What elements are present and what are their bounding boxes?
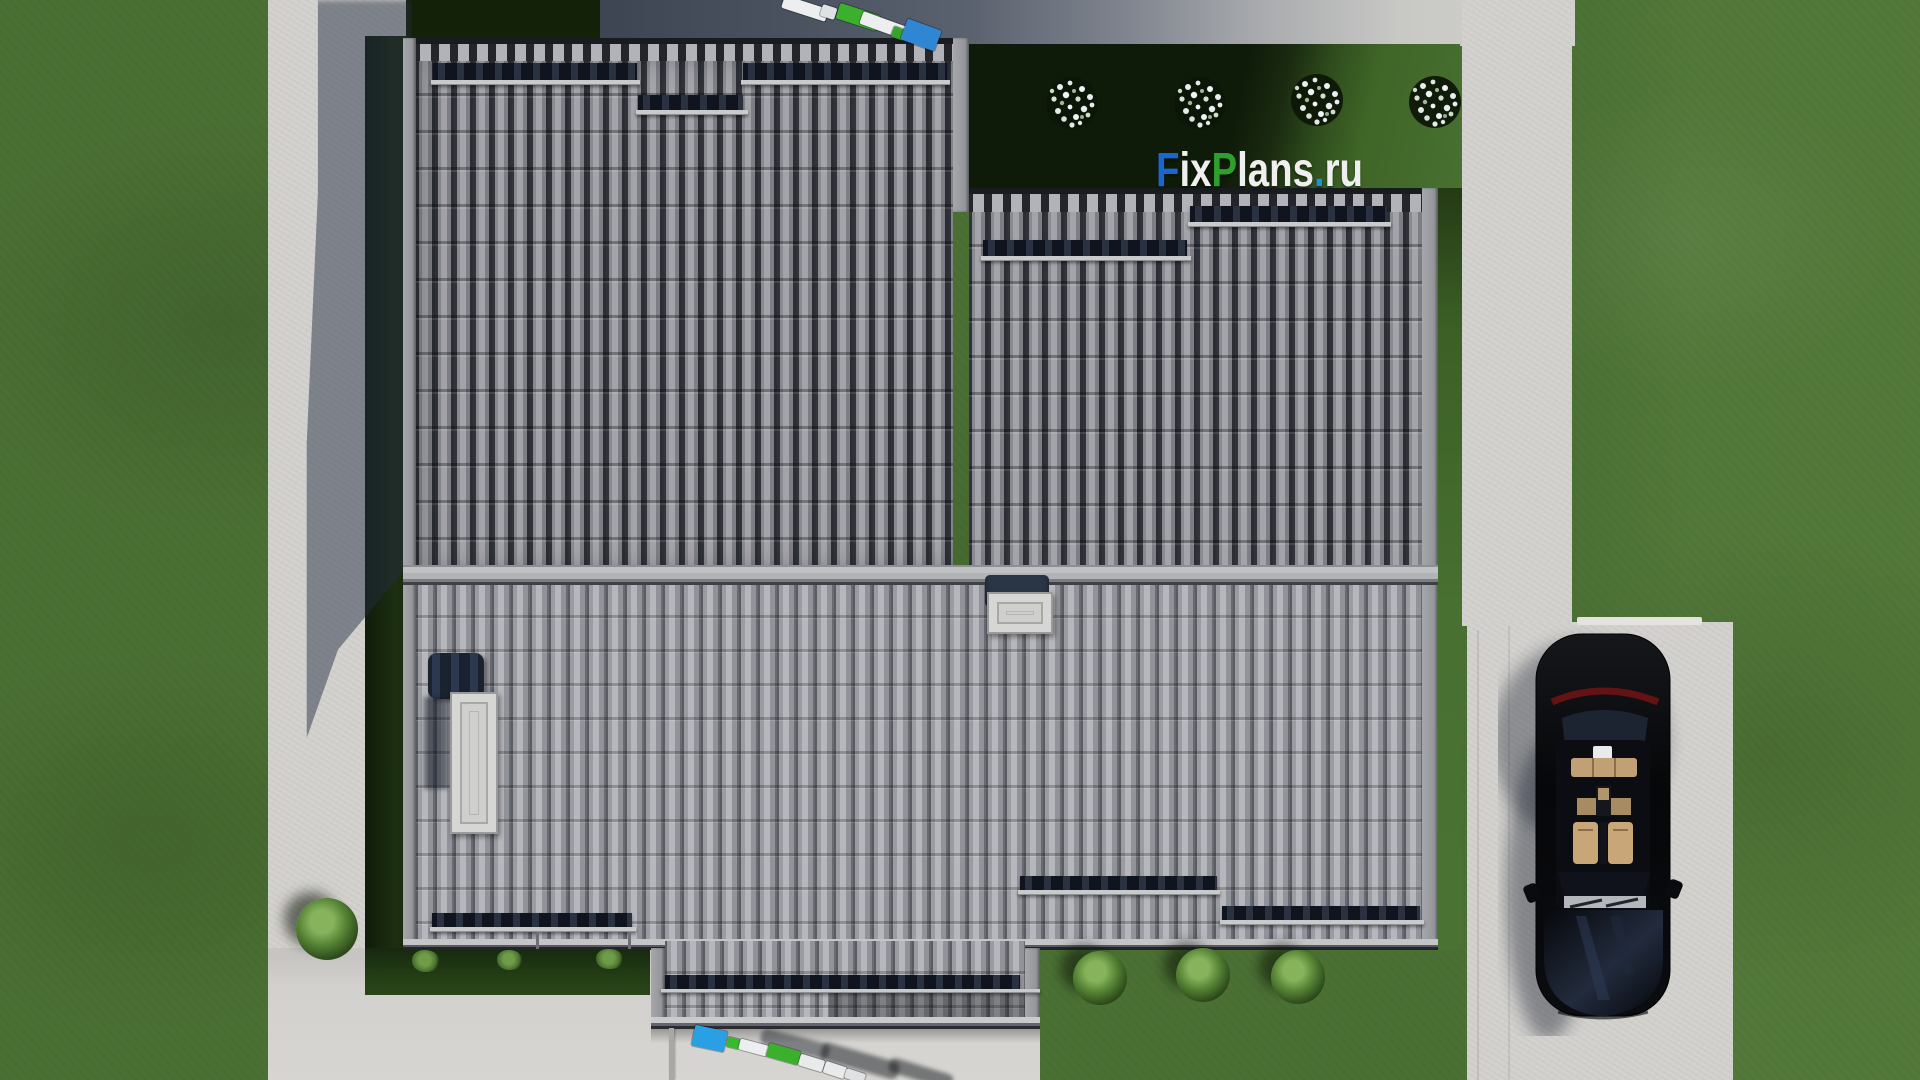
logo-part: F — [1156, 144, 1179, 197]
snow-bar-ledge — [1018, 890, 1220, 895]
car-seat-cushion — [1577, 798, 1597, 815]
right-path — [1462, 0, 1572, 626]
car-seat-gap — [1599, 822, 1607, 864]
flowering-shrub — [1168, 71, 1232, 135]
flowering-shrub — [1285, 68, 1349, 132]
snow-bar-ledge — [1188, 222, 1391, 227]
flowering-shrub — [1040, 71, 1104, 135]
roof-ridge — [403, 565, 1438, 585]
snow-bar — [1020, 876, 1217, 890]
snow-bar-ledge — [430, 927, 636, 932]
snow-bar — [1222, 906, 1420, 920]
car-console-tray — [1598, 788, 1609, 800]
car-seat-cushion — [1611, 798, 1631, 815]
bush — [296, 898, 358, 960]
bush — [1073, 951, 1127, 1005]
snow-bar — [638, 95, 743, 110]
roof-lower-slope — [416, 585, 1422, 939]
extension-shade — [828, 993, 1025, 1017]
roof-upper-left-slope — [416, 61, 953, 567]
roof-hatch-flue — [469, 711, 479, 815]
snow-bar — [665, 975, 1020, 989]
roof-fascia-left — [403, 38, 416, 950]
snow-bar — [983, 240, 1187, 256]
logo-part: . — [1314, 144, 1325, 197]
grass-tuft — [412, 950, 440, 972]
bush — [1271, 950, 1325, 1004]
flowering-shrub — [1403, 70, 1467, 134]
car-rear-seat — [1571, 758, 1637, 777]
vent-pipe-shadow — [424, 697, 448, 789]
logo-part: lans — [1237, 144, 1314, 197]
chimney — [987, 592, 1053, 634]
roof-upper-right-slope — [969, 212, 1422, 567]
grass-tuft — [596, 949, 624, 969]
terrace-post — [669, 1028, 674, 1080]
snow-bar-ledge — [431, 80, 640, 85]
snow-bar-ledge — [661, 989, 1040, 993]
logo-part: ru — [1325, 144, 1363, 197]
roof-edge-caps-upper-left — [416, 38, 953, 61]
extension-fascia-left — [651, 948, 665, 1024]
black-car — [1498, 616, 1698, 1036]
bush — [1176, 948, 1230, 1002]
roof-hatch-rim — [460, 702, 488, 824]
car-front-seat — [1573, 822, 1598, 864]
roof-hatch-chimney — [450, 692, 498, 834]
roof-fascia-step — [953, 38, 969, 212]
snow-bar-ledge — [1220, 920, 1424, 925]
chimney-flue — [1006, 611, 1034, 615]
gutter-post — [628, 932, 631, 949]
car-front-seat — [1608, 822, 1633, 864]
snow-bar — [743, 63, 947, 80]
gutter-post — [536, 932, 539, 949]
snow-bar-ledge — [741, 80, 950, 85]
chimney-rim — [997, 602, 1043, 624]
snow-bar-ledge — [981, 256, 1191, 261]
car-hood — [1544, 910, 1663, 1016]
grass-tuft — [497, 950, 523, 970]
car-windshield — [1558, 872, 1650, 898]
logo-part: P — [1211, 144, 1237, 197]
snow-bar-ledge — [636, 110, 748, 115]
snow-bar — [433, 63, 637, 80]
grass-strip-right — [1438, 188, 1462, 950]
logo-part: ix — [1179, 144, 1211, 197]
extension-fascia-right — [1025, 948, 1040, 1024]
driveway-seam — [1477, 630, 1479, 1080]
snow-bar — [1190, 206, 1387, 222]
watermark-logo: FixPlans.ru — [1156, 143, 1363, 198]
site-plan-render: FixPlans.ru — [0, 0, 1920, 1080]
snow-bar — [432, 913, 632, 927]
